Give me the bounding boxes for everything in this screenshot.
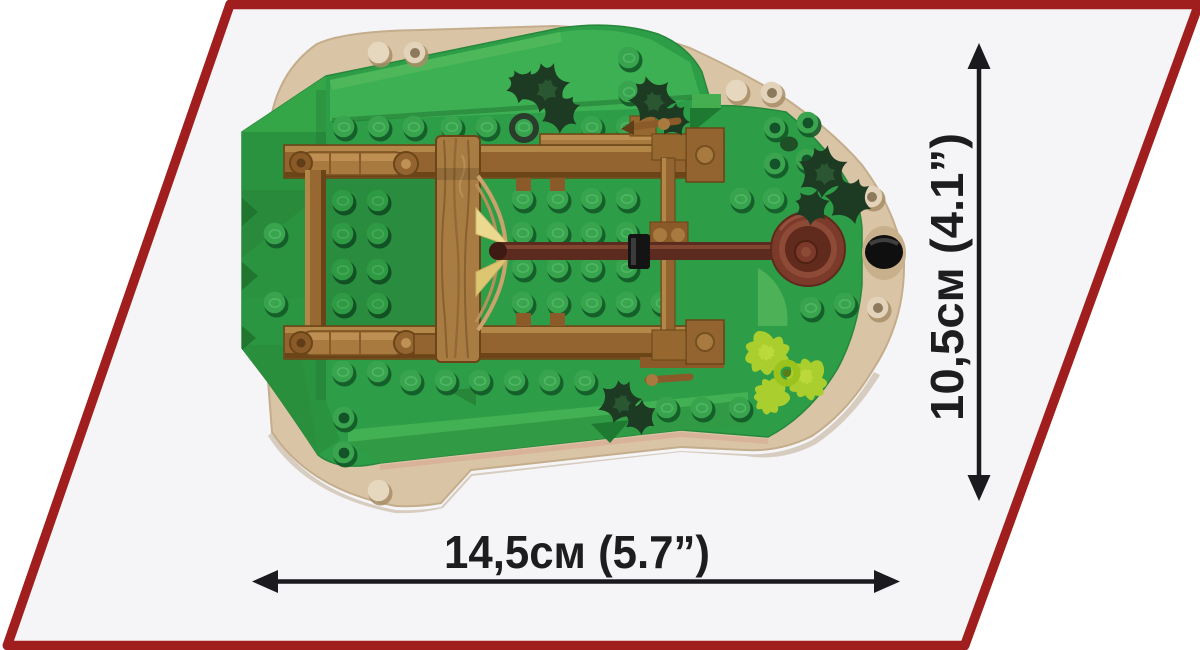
svg-text:14,5см (5.7”): 14,5см (5.7”) [444, 526, 710, 578]
svg-text:10,5см (4.1”): 10,5см (4.1”) [921, 133, 973, 421]
